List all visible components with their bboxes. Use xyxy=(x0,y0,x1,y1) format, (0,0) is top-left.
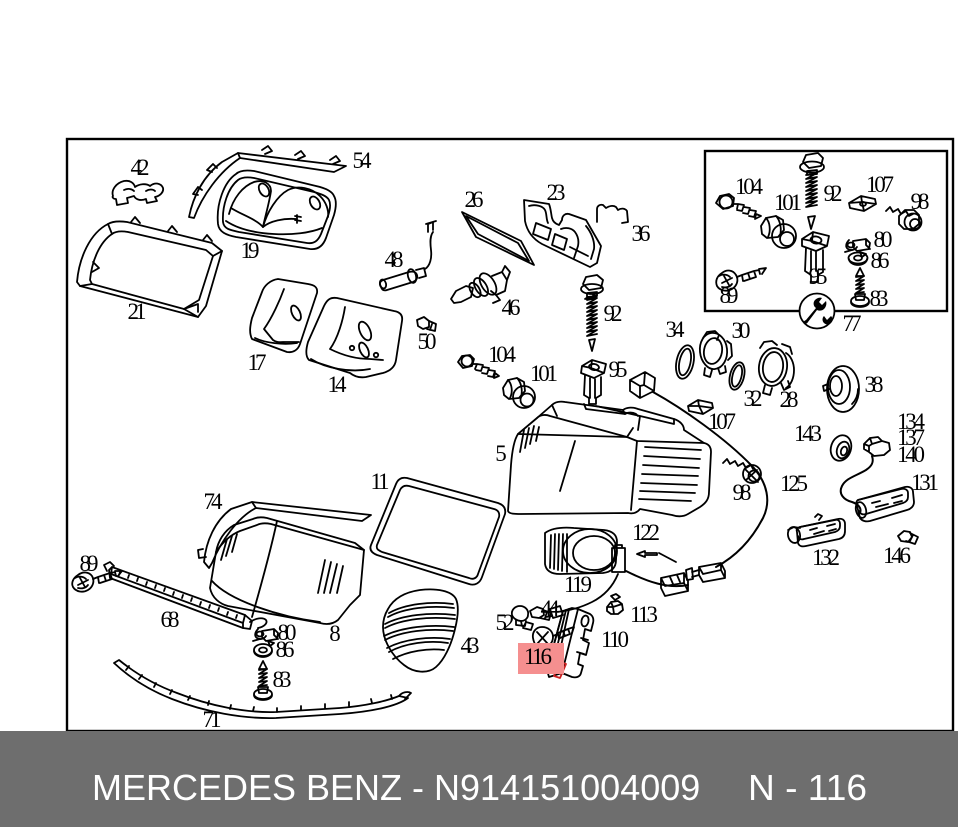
svg-text:107: 107 xyxy=(866,172,894,197)
svg-text:131: 131 xyxy=(911,470,939,495)
svg-text:74: 74 xyxy=(204,489,224,514)
svg-text:50: 50 xyxy=(418,329,437,354)
svg-text:146: 146 xyxy=(883,543,911,568)
svg-text:14: 14 xyxy=(328,372,348,397)
svg-text:30: 30 xyxy=(732,318,751,343)
svg-text:N - 116: N - 116 xyxy=(748,767,867,808)
svg-text:48: 48 xyxy=(385,247,404,272)
svg-text:110: 110 xyxy=(601,627,629,652)
svg-text:95: 95 xyxy=(809,264,828,289)
svg-text:140: 140 xyxy=(897,442,925,467)
svg-text:19: 19 xyxy=(241,238,260,263)
svg-text:68: 68 xyxy=(161,607,180,632)
svg-text:23: 23 xyxy=(547,180,566,205)
svg-text:26: 26 xyxy=(465,187,484,212)
svg-text:8: 8 xyxy=(329,621,341,646)
svg-text:MERCEDES BENZ - N914151004009: MERCEDES BENZ - N914151004009 xyxy=(92,767,700,808)
svg-text:95: 95 xyxy=(609,357,628,382)
svg-text:116: 116 xyxy=(524,644,552,669)
svg-text:143: 143 xyxy=(794,421,822,446)
svg-text:107: 107 xyxy=(708,409,736,434)
svg-text:89: 89 xyxy=(80,551,99,576)
svg-text:83: 83 xyxy=(870,286,889,311)
svg-text:77: 77 xyxy=(843,311,862,336)
svg-text:38: 38 xyxy=(865,372,884,397)
svg-text:89: 89 xyxy=(720,283,739,308)
svg-text:54: 54 xyxy=(353,148,373,173)
svg-text:32: 32 xyxy=(744,386,763,411)
svg-text:11: 11 xyxy=(371,469,390,494)
svg-text:119: 119 xyxy=(564,572,592,597)
svg-text:101: 101 xyxy=(774,190,802,215)
svg-text:17: 17 xyxy=(248,350,267,375)
svg-text:83: 83 xyxy=(273,667,292,692)
svg-text:125: 125 xyxy=(780,471,808,496)
svg-text:101: 101 xyxy=(530,361,558,386)
svg-text:44: 44 xyxy=(541,596,561,621)
svg-text:92: 92 xyxy=(824,181,843,206)
svg-text:92: 92 xyxy=(604,301,623,326)
svg-text:122: 122 xyxy=(632,520,660,545)
svg-text:113: 113 xyxy=(630,602,658,627)
svg-text:34: 34 xyxy=(666,317,686,342)
svg-text:104: 104 xyxy=(488,342,517,367)
svg-text:86: 86 xyxy=(276,637,295,662)
svg-text:98: 98 xyxy=(911,189,930,214)
svg-text:46: 46 xyxy=(502,295,521,320)
svg-text:71: 71 xyxy=(203,707,222,732)
svg-text:86: 86 xyxy=(871,248,890,273)
svg-text:5: 5 xyxy=(495,441,507,466)
svg-text:28: 28 xyxy=(780,387,799,412)
svg-text:36: 36 xyxy=(632,221,651,246)
svg-text:98: 98 xyxy=(733,480,752,505)
svg-text:52: 52 xyxy=(496,610,515,635)
svg-text:42: 42 xyxy=(131,155,150,180)
svg-text:43: 43 xyxy=(461,633,480,658)
svg-text:21: 21 xyxy=(128,299,147,324)
svg-text:104: 104 xyxy=(735,174,764,199)
svg-text:132: 132 xyxy=(812,545,840,570)
